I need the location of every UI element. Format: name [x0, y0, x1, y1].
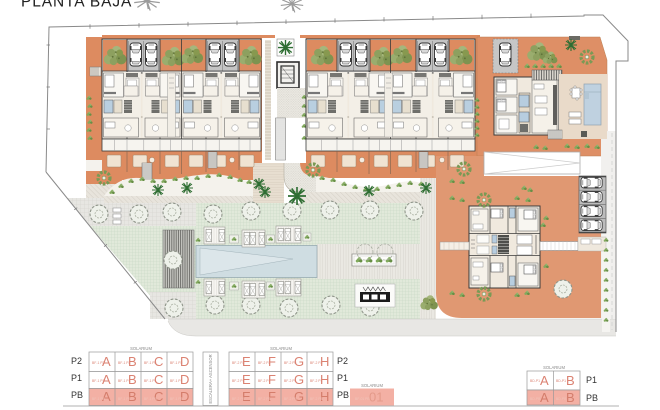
svg-text:BF-2 P1: BF-2 P1 — [232, 379, 245, 383]
svg-text:P1: P1 — [337, 373, 348, 383]
svg-text:BD-PB: BD-PB — [556, 397, 567, 401]
svg-text:BF-1 P1: BF-1 P1 — [118, 379, 131, 383]
svg-text:PB: PB — [586, 393, 598, 403]
svg-text:BF-2 P1: BF-2 P1 — [310, 379, 323, 383]
svg-text:A: A — [540, 390, 549, 405]
svg-text:P1: P1 — [586, 375, 597, 385]
svg-text:PB: PB — [337, 390, 349, 400]
svg-text:BF-2 PB: BF-2 PB — [258, 397, 272, 401]
svg-text:BF-1 PB: BF-1 PB — [92, 397, 106, 401]
svg-text:BD-P1: BD-P1 — [556, 379, 566, 383]
svg-text:01: 01 — [369, 390, 383, 405]
svg-text:BF-1 P2: BF-1 P2 — [118, 361, 131, 365]
svg-text:BF-2 PB: BF-2 PB — [284, 397, 298, 401]
svg-text:BD-PB: BD-PB — [530, 397, 541, 401]
svg-text:BF-1 P2: BF-1 P2 — [144, 361, 157, 365]
svg-text:BF-2 P2: BF-2 P2 — [310, 361, 323, 365]
svg-text:B: B — [566, 373, 575, 388]
svg-text:BF-1 P2: BF-1 P2 — [92, 361, 105, 365]
svg-text:SOLARIUM: SOLARIUM — [543, 365, 565, 370]
svg-text:BF-2 P1: BF-2 P1 — [284, 379, 297, 383]
svg-text:SOLARIUM: SOLARIUM — [130, 346, 152, 351]
svg-text:B: B — [566, 390, 575, 405]
svg-text:BF-01 PB: BF-01 PB — [355, 397, 370, 401]
svg-text:BF-1 PB: BF-1 PB — [170, 397, 184, 401]
svg-text:BF-1 PB: BF-1 PB — [144, 397, 158, 401]
svg-text:BF-2 P1: BF-2 P1 — [258, 379, 271, 383]
svg-text:BF-2 P2: BF-2 P2 — [284, 361, 297, 365]
svg-text:BF-1 PB: BF-1 PB — [118, 397, 132, 401]
svg-text:BF-2 PB: BF-2 PB — [232, 397, 246, 401]
svg-text:PB: PB — [71, 390, 83, 400]
svg-text:A: A — [540, 373, 549, 388]
svg-text:BF-1 P1: BF-1 P1 — [92, 379, 105, 383]
svg-text:SOLARIUM: SOLARIUM — [361, 383, 383, 388]
svg-text:SOLARIUM: SOLARIUM — [270, 346, 292, 351]
svg-text:PLANTA BAJA: PLANTA BAJA — [21, 0, 132, 11]
svg-text:P1: P1 — [71, 373, 82, 383]
svg-text:BF-2 P2: BF-2 P2 — [232, 361, 245, 365]
svg-text:BF-1 P1: BF-1 P1 — [144, 379, 157, 383]
svg-text:BF-2 P2: BF-2 P2 — [258, 361, 271, 365]
svg-text:P2: P2 — [71, 356, 82, 366]
svg-text:BF-1 P1: BF-1 P1 — [170, 379, 183, 383]
svg-text:BD-P1: BD-P1 — [530, 379, 540, 383]
svg-text:BF-1 P2: BF-1 P2 — [170, 361, 183, 365]
svg-text:ESCALERA+ ASCENSOR: ESCALERA+ ASCENSOR — [208, 354, 213, 403]
svg-text:P2: P2 — [337, 356, 348, 366]
svg-text:BF-2 PB: BF-2 PB — [310, 397, 324, 401]
